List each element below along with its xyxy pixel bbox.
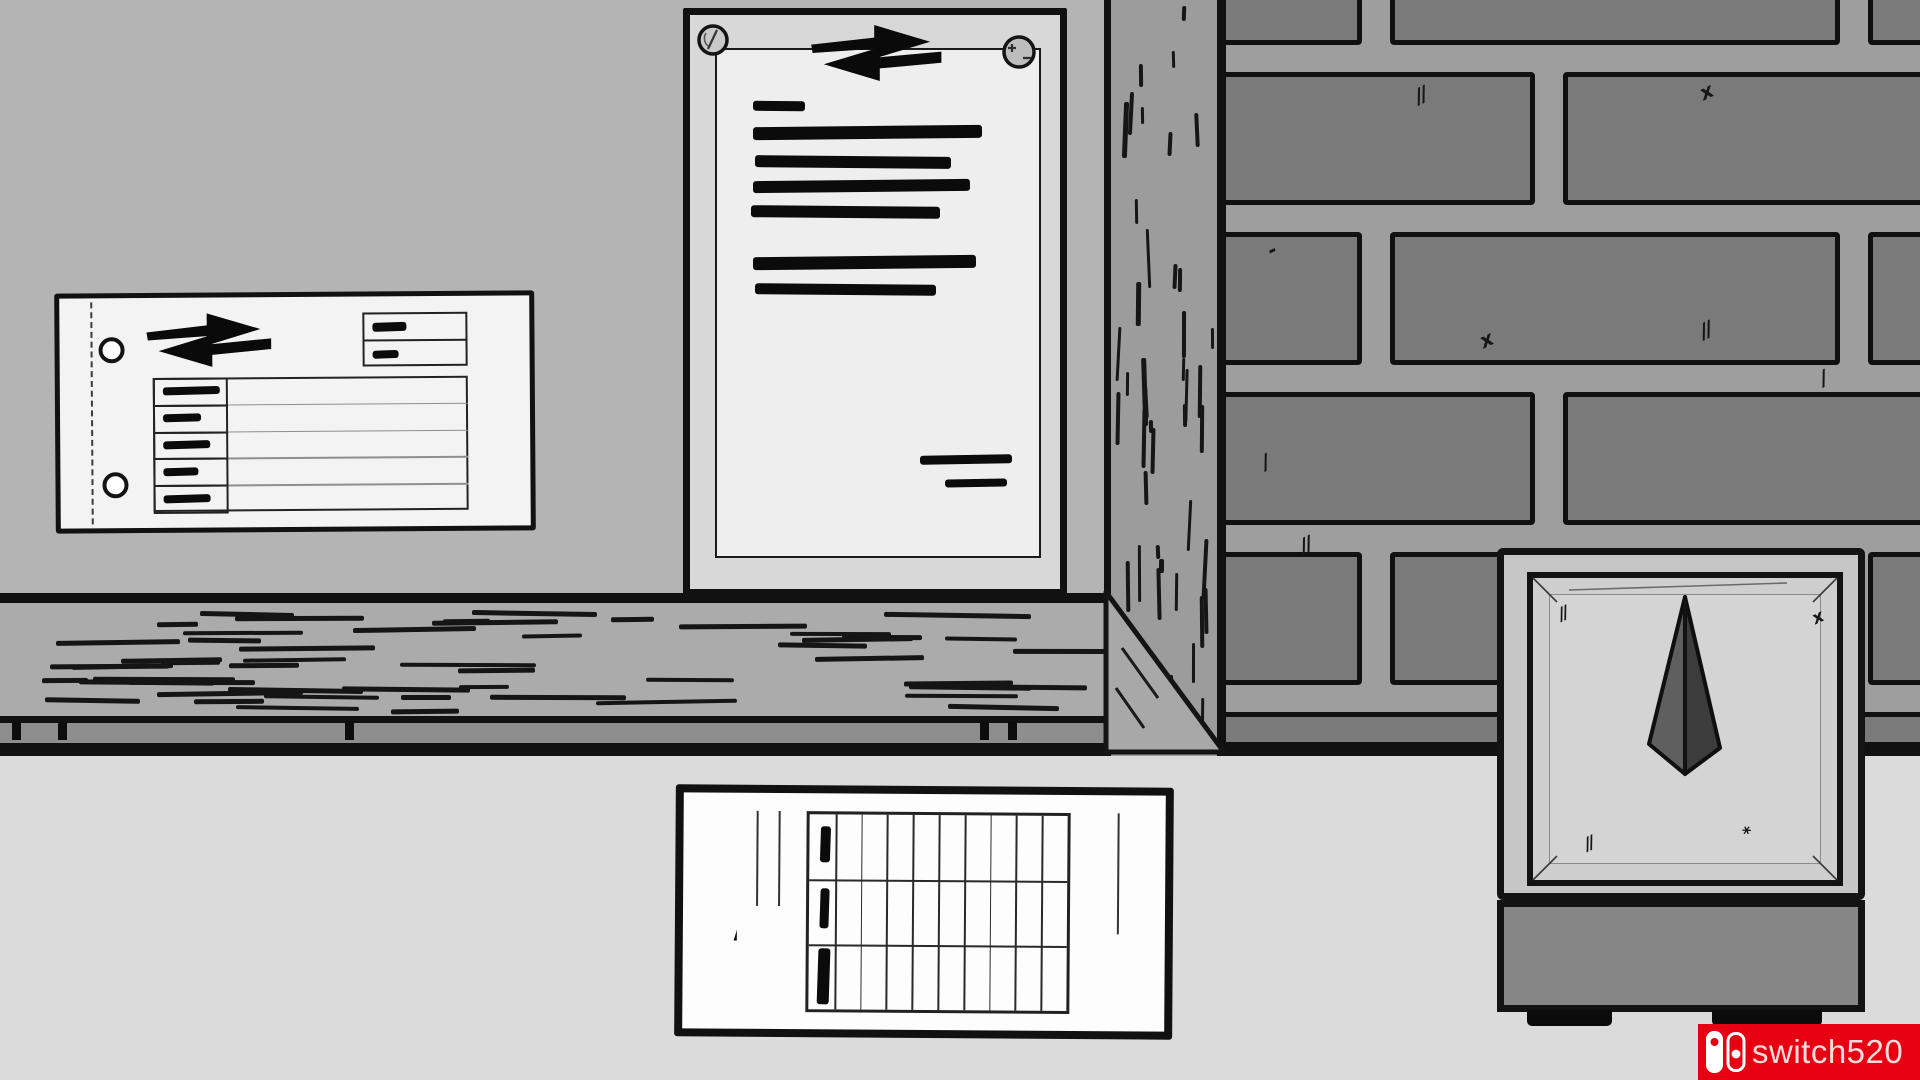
shelf-corner — [1100, 588, 1230, 760]
grid-column-line — [963, 815, 966, 1010]
punch-hole — [102, 472, 128, 498]
redacted-dash — [163, 467, 198, 476]
double-arrow-logo-icon — [142, 310, 276, 370]
redacted-dash — [163, 494, 210, 503]
wood-grain-line — [610, 616, 653, 622]
wood-grain-line — [1143, 471, 1148, 506]
redacted-text-line — [755, 155, 951, 169]
wood-grain-line — [239, 645, 375, 651]
device-foot — [1527, 1010, 1612, 1026]
device-inner-face — [1549, 594, 1821, 864]
wood-grain-line — [1184, 369, 1188, 422]
double-arrow-logo-vertical-icon — [687, 842, 738, 972]
wood-grain-line — [802, 636, 913, 642]
brick — [1868, 232, 1920, 365]
wood-grain-line — [1177, 268, 1181, 292]
wood-grain-line — [56, 639, 181, 645]
wood-grain-line — [157, 621, 198, 627]
redacted-text-line — [753, 179, 970, 193]
wood-grain-line — [391, 709, 459, 715]
brick — [1868, 552, 1920, 685]
brick — [1226, 712, 1535, 756]
brick — [1563, 392, 1920, 525]
punch-mark — [820, 826, 831, 862]
redacted-dash — [372, 322, 406, 332]
wood-grain-line — [264, 695, 379, 701]
shelf-support-tick — [1008, 721, 1017, 740]
redacted-text-line — [751, 205, 940, 219]
wood-grain-line — [1155, 545, 1159, 559]
punch-mark — [819, 888, 829, 928]
wood-grain-line — [1211, 328, 1214, 349]
wood-grain-line — [188, 637, 261, 643]
redacted-text-line — [753, 125, 982, 140]
wood-grain-line — [1182, 311, 1186, 358]
wood-grain-line — [353, 626, 476, 633]
wood-grain-line — [1200, 405, 1205, 453]
wood-grain-line — [236, 705, 359, 711]
wood-grain-line — [229, 663, 299, 669]
brick — [1868, 0, 1920, 45]
wood-grain-line — [1172, 264, 1177, 290]
redacted-dash — [163, 440, 210, 449]
wood-grain-line — [472, 610, 597, 617]
wood-grain-line — [45, 697, 140, 703]
wood-grain-line — [1013, 649, 1104, 655]
grid-column-line — [912, 815, 915, 1010]
punch-grid — [805, 811, 1070, 1014]
guide-line — [778, 811, 781, 906]
grid-column-line — [834, 814, 837, 1009]
wood-grain-line — [679, 624, 807, 629]
wood-grain-line — [183, 630, 303, 635]
signature-line — [945, 478, 1007, 487]
perforation-line — [90, 302, 94, 524]
wood-grain-line — [1187, 500, 1193, 551]
wood-grain-line — [1128, 92, 1134, 135]
wood-grain-line — [1135, 199, 1138, 224]
wood-grain-line — [1115, 326, 1121, 380]
wood-grain-line — [400, 662, 536, 667]
brick — [1563, 72, 1920, 205]
ticket-device[interactable]: //x//* — [1497, 548, 1865, 1026]
punch-hole — [98, 337, 124, 363]
wood-grain-line — [790, 632, 891, 636]
wood-grain-line — [1001, 685, 1087, 691]
brick — [1390, 232, 1840, 365]
screw-pin-plus-minus-icon — [999, 32, 1039, 72]
punch-mark — [817, 948, 831, 1004]
wood-grain-line — [443, 619, 490, 625]
game-scene: //x-///x////-/ — [0, 0, 1920, 1080]
screw-pin-slotted-icon — [695, 22, 731, 58]
wood-grain-line — [1167, 132, 1172, 157]
shelf-support-tick — [345, 721, 354, 740]
wood-grain-line — [1194, 113, 1200, 148]
device-base — [1497, 900, 1865, 1012]
grid-column-line — [989, 815, 992, 1010]
brick — [1226, 0, 1362, 45]
signature-line — [920, 454, 1012, 465]
shelf-support-tick — [980, 721, 989, 740]
wood-grain-line — [342, 686, 470, 692]
wood-grain-line — [945, 637, 1017, 643]
wood-grain-line — [1151, 427, 1156, 473]
redacted-text-line — [753, 255, 976, 270]
punch-card[interactable] — [674, 784, 1174, 1039]
grid-column-line — [937, 815, 940, 1010]
shelf-shadow — [0, 723, 1104, 756]
brick — [1226, 392, 1535, 525]
redacted-dash — [163, 413, 201, 422]
wood-grain-line — [1141, 107, 1145, 124]
grid-column-line — [1015, 816, 1018, 1011]
wood-grain-line — [1172, 51, 1176, 68]
wood-grain-line — [815, 655, 924, 662]
brick — [1226, 552, 1362, 685]
shelf-support-tick — [58, 721, 67, 740]
grid-column-line — [860, 815, 863, 1010]
device-panel — [1527, 572, 1843, 886]
guide-line — [1117, 813, 1120, 934]
wood-grain-line — [1146, 229, 1152, 288]
wood-grain-line — [884, 612, 1031, 619]
guide-line — [756, 811, 759, 906]
brick — [1390, 0, 1840, 45]
redacted-dash — [372, 350, 398, 359]
double-arrow-logo-icon — [807, 22, 947, 84]
wood-grain-line — [1139, 64, 1143, 87]
wood-grain-line — [128, 679, 255, 685]
wood-grain-line — [401, 695, 451, 700]
wood-grain-line — [1136, 282, 1141, 326]
wood-grain-line — [458, 667, 535, 673]
wood-shelf — [0, 593, 1104, 723]
nintendo-switch-icon — [1705, 1030, 1747, 1074]
wood-grain-line — [1125, 372, 1128, 396]
pinned-document[interactable] — [683, 8, 1067, 596]
shelf-support-tick — [12, 721, 21, 740]
wood-grain-line — [778, 642, 867, 648]
wood-grain-line — [948, 704, 1059, 711]
wood-grain-line — [490, 695, 626, 700]
brick-scratch-mark: / — [1816, 368, 1830, 388]
watermark-text: switch520 — [1752, 1033, 1903, 1071]
brick — [1226, 72, 1535, 205]
watermark-banner: switch520 — [1698, 1024, 1920, 1080]
wood-grain-line — [1148, 420, 1152, 434]
grid-column-line — [886, 815, 889, 1010]
wood-grain-line — [646, 677, 734, 682]
grid-column-line — [1041, 816, 1044, 1011]
wood-grain-line — [1182, 6, 1186, 21]
wood-grain-line — [522, 634, 582, 639]
wood-grain-line — [1116, 392, 1121, 445]
wood-grain-line — [905, 694, 1018, 699]
redacted-text-line — [753, 101, 805, 111]
wall-note-card[interactable] — [54, 290, 536, 533]
wood-grain-line — [1141, 409, 1146, 468]
brick — [1226, 232, 1362, 365]
redacted-text-line — [755, 283, 936, 296]
